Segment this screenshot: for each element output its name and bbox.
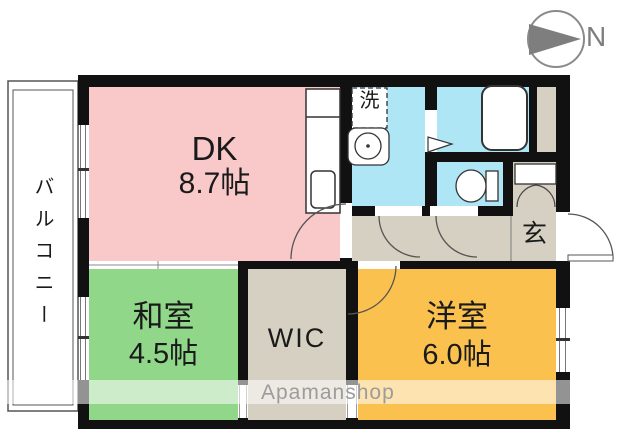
western-room-label: 洋室 [358, 301, 556, 334]
dk-room-size: 8.7帖 [89, 168, 340, 200]
wic-label: WIC [248, 324, 346, 352]
balcony-label: バルコニー [24, 176, 60, 396]
sliding-partition [89, 261, 238, 269]
laundry-label: 洗 [352, 91, 387, 112]
window-tick [78, 168, 89, 171]
entrance-door-leaf [568, 255, 613, 261]
vanity-sink-icon [348, 128, 389, 165]
hallway [352, 216, 513, 261]
north-label: N [586, 22, 606, 51]
japanese-room-label: 和室 [89, 301, 238, 334]
toilet-icon [456, 170, 498, 202]
floor-plan-image: バルコニー DK 8.7帖 洗 玄 和室 4.5帖 WIC 洋室 6.0帖 N … [0, 0, 640, 444]
bathtub-icon [482, 86, 527, 150]
entrance-side-strip [537, 87, 556, 152]
dk-room-label: DK [89, 132, 340, 167]
compass-icon [528, 11, 584, 67]
entrance-door-arc [568, 214, 613, 259]
watermark-text: Apamanshop [261, 381, 395, 405]
japanese-room-size: 4.5帖 [89, 339, 238, 369]
western-room-size: 6.0帖 [358, 340, 556, 370]
entrance-label: 玄 [513, 221, 556, 247]
